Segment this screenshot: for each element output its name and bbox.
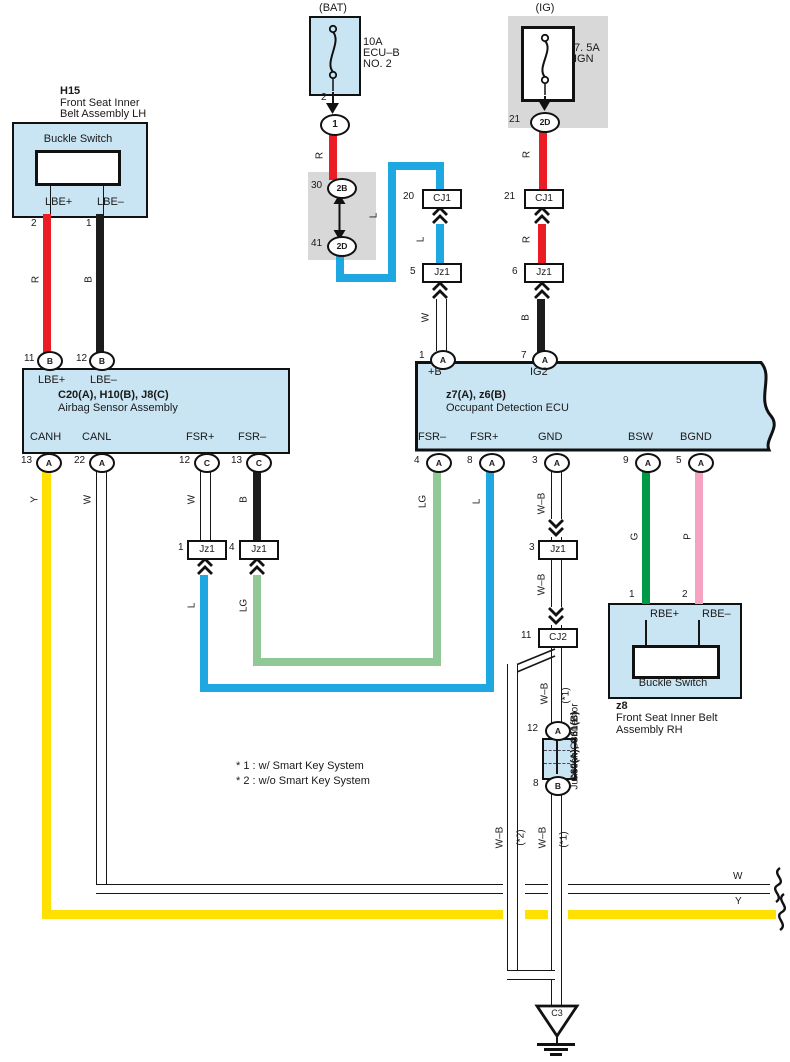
wire-label-star2: (*2) [516,818,527,858]
connector-pin-num: 20 [403,191,414,202]
wire-white-canl [525,884,548,894]
wire-yellow-canh [568,910,776,919]
connector-pin-num: 3 [529,542,535,553]
pin-oval-airbag-12b: B [89,351,115,371]
ground-label: C3 [545,1008,569,1018]
wire-label-lg: LG [418,482,429,522]
wire-yellow-canh [525,910,548,919]
wire-label-l: L [472,482,483,522]
wire-label-g: G [630,517,641,557]
wire-label-r: R [31,260,42,300]
h15-pin-num: 1 [86,218,92,229]
wire-label-r: R [522,135,533,175]
airbag-pin-num: 11 [24,353,34,364]
wire-black-fsr-minus [253,468,261,542]
pin-oval-airbag-13c: C [246,453,272,473]
h15-pin-label: LBE+ [45,196,72,208]
double-arrow-icon [331,194,348,240]
wire-blue-fsr [486,468,494,692]
connector-cj2: CJ2 [538,628,578,648]
ground-bar [537,1043,575,1046]
connector-cj1-right: CJ1 [524,189,564,209]
switch-lead-line [698,620,700,646]
wire-label-wb: W–B [537,484,548,524]
pin-oval-2d: 2D [327,236,357,257]
bat-fuse-tag: (BAT) [303,2,363,14]
wire-white-canl [568,884,770,894]
connector-pin-num: 5 [410,266,416,277]
wire-label-wb: W–B [495,818,506,858]
ecu-code: z7(A), z6(B) [446,389,506,401]
pin-oval-ecu-3a: A [544,453,570,473]
wire-label-b: B [521,298,532,338]
wire-green-bsw [642,468,650,604]
wire-label-p: P [683,517,694,557]
fuse-icon [309,16,357,92]
note-smart-key-1: * 1 : w/ Smart Key System [236,760,364,772]
pin-oval-bat-1: 1 [320,114,350,136]
wire-label-wb: W–B [540,674,551,714]
z8-switch-label: Buckle Switch [616,677,730,689]
wire-white-fsr-plus [200,468,211,542]
pin-oval-ecu-9a: A [635,453,661,473]
wire-blue-fsr [200,556,208,692]
z8-pin-label: RBE+ [650,608,679,620]
relay-pin-num: 30 [311,180,322,191]
ecu-pin-num: 8 [467,455,473,466]
pin-oval-airbag-22a: A [89,453,115,473]
bat-fuse-name: NO. 2 [363,58,392,70]
fuse-icon [521,26,569,96]
ecu-bottom-label: GND [538,431,562,443]
airbag-top-label: LBE+ [38,374,65,386]
wire-white-canl [96,468,107,892]
bat-fuse-pin: 2 [321,92,327,103]
wiring-diagram: CJ1 Jz1 CJ1 Jz1 Jz1 Jz1 Jz1 CJ2 1 2B 2D … [0,0,790,1062]
pin-oval-ecu-5a: A [688,453,714,473]
ig-fuse-name: IGN [574,53,594,65]
wire-yellow-canh [42,468,51,919]
z8-pin-num: 1 [629,589,635,600]
pin-oval-airbag-11b: B [37,351,63,371]
ecu-bottom-label: BGND [680,431,712,443]
connector-jz1-1: Jz1 [187,540,227,560]
h15-switch-label: Buckle Switch [22,133,134,145]
ecu-pin-num: 3 [532,455,538,466]
wire-pink-bgnd [695,468,703,604]
connector-pin-num: 1 [178,542,184,553]
connector-jz1-5: Jz1 [422,263,462,283]
connector-arrow-icon [430,281,450,299]
buckle-switch-symbol [35,150,121,186]
airbag-bottom-label: CANL [82,431,111,443]
note-smart-key-2: * 2 : w/o Smart Key System [236,775,370,787]
wire-blue-fsr [200,684,494,692]
z8-pin-label: RBE– [702,608,731,620]
relay-pin-num: 41 [311,238,322,249]
airbag-bottom-label: FSR+ [186,431,214,443]
ecu-bottom-label: FSR– [418,431,446,443]
wire-label-y-end: Y [735,896,742,907]
wire-label-lg: LG [239,586,250,626]
ecu-name: Occupant Detection ECU [446,402,569,414]
ecu-pin-num: 7 [521,350,527,361]
connector-pin-num: 8 [533,778,539,789]
h15-code: H15 [60,85,80,97]
arrow-down-icon [326,103,339,114]
ground-bar [550,1053,562,1056]
wire-label-w-end: W [733,871,742,882]
wire-label-l: L [416,220,427,260]
h15-pin-num: 2 [31,218,37,229]
wire-label-star1: (*1) [559,820,570,860]
connector-pin-num: 12 [527,723,538,734]
connector-arrow-icon [546,519,566,537]
wire-label-r: R [315,136,326,176]
airbag-name: Airbag Sensor Assembly [58,402,178,414]
ground-lead [556,1036,558,1043]
wire-label-r: R [522,220,533,260]
ecu-top-label: +B [428,366,442,378]
ground-bar [544,1048,568,1051]
wire-label-b: B [84,260,95,300]
airbag-pin-num: 13 [21,455,32,466]
pin-oval-ig-2d: 2D [530,112,560,133]
connector-jz1-3: Jz1 [538,540,578,560]
connector-cj1-left: CJ1 [422,189,462,209]
ecu-pin-num: 1 [419,350,425,361]
connector-pin-num: 4 [229,542,235,553]
ecu-top-label: IG2 [530,366,548,378]
ecu-bottom-label: BSW [628,431,653,443]
wire-label-y: Y [30,480,41,520]
wire-label-l: L [369,196,380,236]
connector-pin-num: 6 [512,266,518,277]
wire-red-ig [539,127,547,191]
pin-oval-ecu-4a: A [426,453,452,473]
switch-lead-line [645,620,647,646]
z8-pin-num: 2 [682,589,688,600]
connector-arrow-icon [546,607,566,625]
wire-blue-l [436,162,444,190]
continuation-icon [772,894,790,930]
airbag-top-label: LBE– [90,374,117,386]
ecu-bottom-label: FSR+ [470,431,498,443]
z8-name: Front Seat Inner Belt [616,712,718,724]
wire-label-w: W [83,480,94,520]
wire-black-lbe-minus [96,214,104,354]
pin-oval-airbag-13a: A [36,453,62,473]
ecu-pin-num: 9 [623,455,629,466]
ecu-pin-num: 5 [676,455,682,466]
wire-label-w: W [187,480,198,520]
wire-blue-l [336,274,396,282]
wire-label-l: L [187,586,198,626]
wire-label-w: W [421,298,432,338]
connector-arrow-icon [532,281,552,299]
connector-jz1-6: Jz1 [524,263,564,283]
airbag-pin-num: 12 [76,353,87,364]
h15-name: Belt Assembly LH [60,108,146,120]
z8-name: Assembly RH [616,724,683,736]
buckle-switch-symbol [632,645,720,679]
connector-jz1-4: Jz1 [239,540,279,560]
pin-oval-2b: 2B [327,178,357,199]
arrow-down-icon [538,100,551,111]
junction-grid-divider [556,740,558,774]
wire-lightgreen-fsr [253,658,441,666]
airbag-pin-num: 22 [74,455,85,466]
wire-yellow-canh [42,910,503,919]
ecu-pin-num: 4 [414,455,420,466]
wire-label-star1: (*1) [561,676,572,716]
pin-oval-airbag-12c: C [194,453,220,473]
pin-oval-ecu-8a: A [479,453,505,473]
pin-oval-junction-12a: A [545,721,571,741]
wire-label-wb: W–B [538,818,549,858]
wire-label-wb: W–B [537,565,548,605]
wire-blue-l [388,162,396,282]
junction-grid-divider [544,750,570,751]
wire-red-lbe-plus [43,214,51,354]
airbag-bottom-label: FSR– [238,431,266,443]
airbag-pin-num: 13 [231,455,242,466]
ig-fuse-pin: 21 [509,114,520,125]
pin-oval-junction-8b: B [545,776,571,796]
connector-pin-num: 11 [521,630,531,641]
airbag-pin-num: 12 [179,455,190,466]
airbag-bottom-label: CANH [30,431,61,443]
wire-label-b: B [239,480,250,520]
wire-wb-bypass [507,970,555,980]
airbag-code: C20(A), H10(B), J8(C) [58,389,169,401]
wire-lightgreen-fsr [433,468,441,666]
junction-grid-divider [544,763,570,764]
z8-code: z8 [616,700,628,712]
connector-pin-num: 21 [504,191,515,202]
ig-fuse-tag: (IG) [515,2,575,14]
h15-pin-label: LBE– [97,196,124,208]
wire-red-bat [329,130,337,180]
wire-white-canl [96,884,503,894]
